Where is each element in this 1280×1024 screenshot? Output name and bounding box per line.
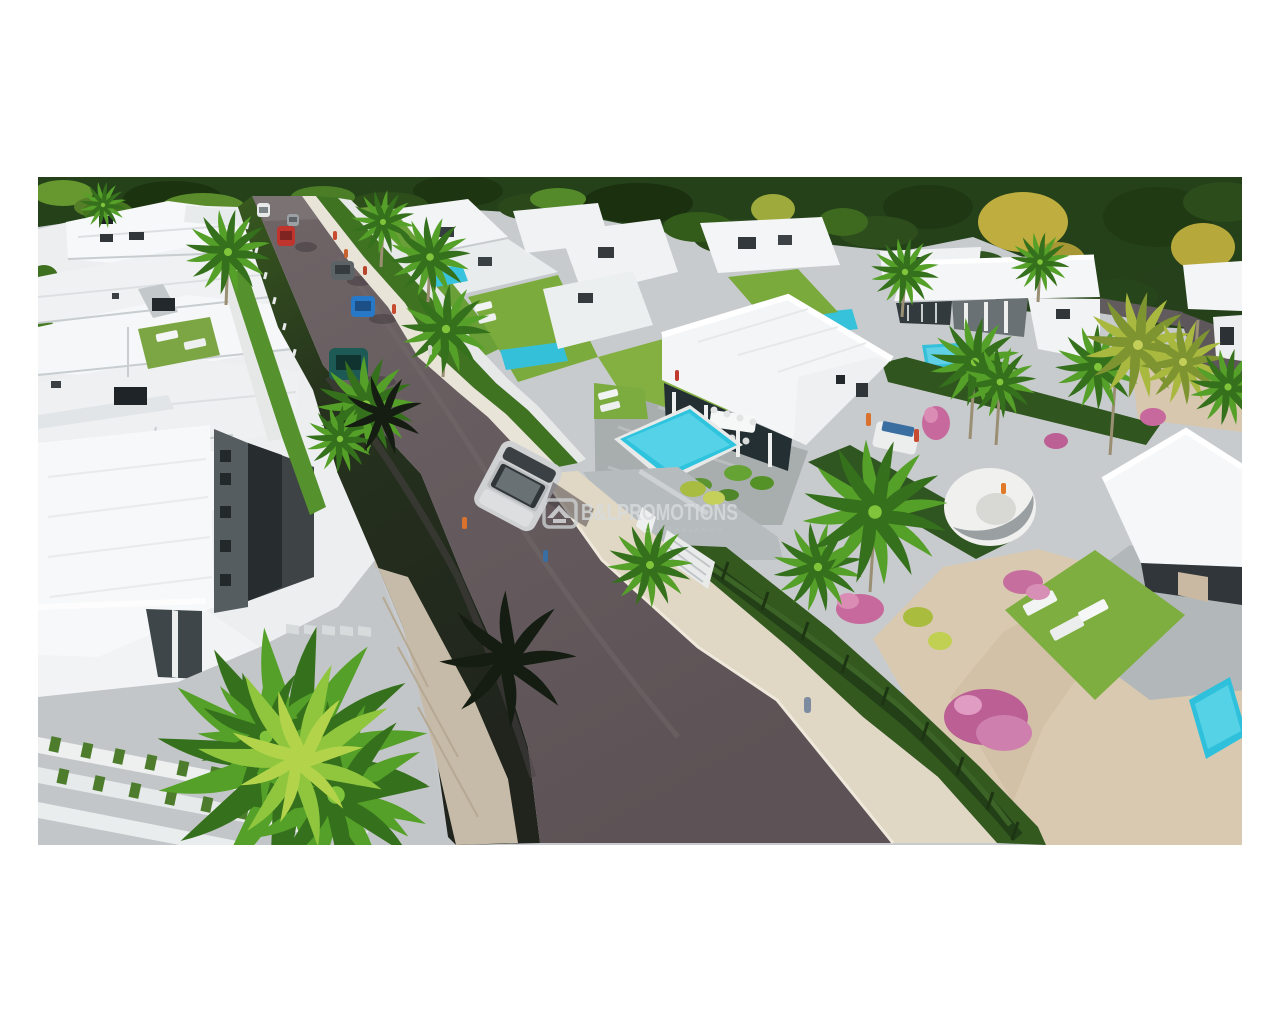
svg-text:C O S T A B L A N C A: C O S T A B L A N C A: [645, 527, 723, 534]
svg-text:B&LPROMOTIONS: B&LPROMOTIONS: [581, 499, 738, 525]
